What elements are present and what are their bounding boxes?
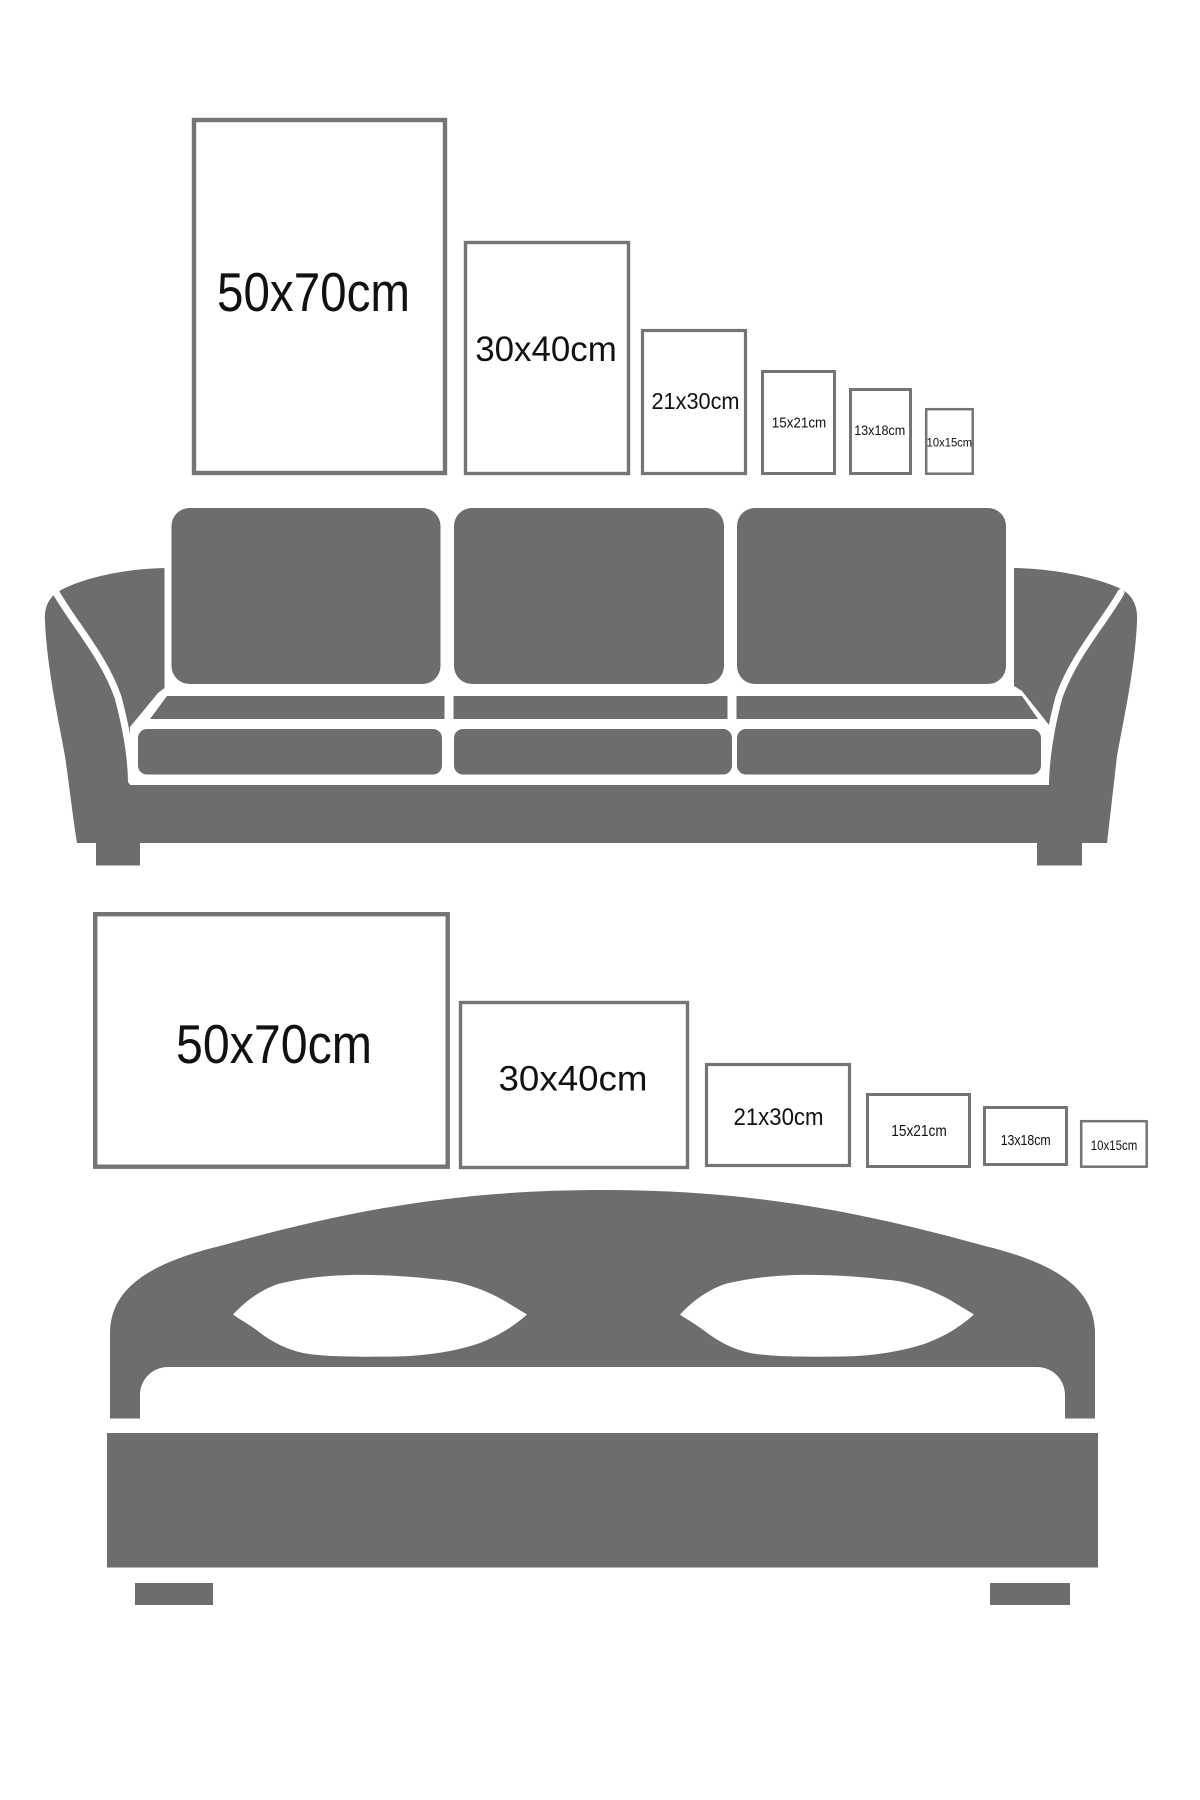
svg-text:30x40cm: 30x40cm <box>499 1059 648 1099</box>
svg-text:30x40cm: 30x40cm <box>475 329 617 369</box>
svg-text:10x15cm: 10x15cm <box>1091 1138 1138 1153</box>
svg-text:50x70cm: 50x70cm <box>217 261 410 323</box>
svg-text:10x15cm: 10x15cm <box>927 436 973 450</box>
svg-text:50x70cm: 50x70cm <box>176 1013 372 1075</box>
svg-text:13x18cm: 13x18cm <box>1001 1132 1051 1149</box>
svg-text:15x21cm: 15x21cm <box>891 1123 947 1140</box>
svg-text:15x21cm: 15x21cm <box>772 416 827 432</box>
svg-text:21x30cm: 21x30cm <box>734 1104 824 1131</box>
svg-text:21x30cm: 21x30cm <box>652 388 740 414</box>
svg-text:13x18cm: 13x18cm <box>854 423 905 438</box>
